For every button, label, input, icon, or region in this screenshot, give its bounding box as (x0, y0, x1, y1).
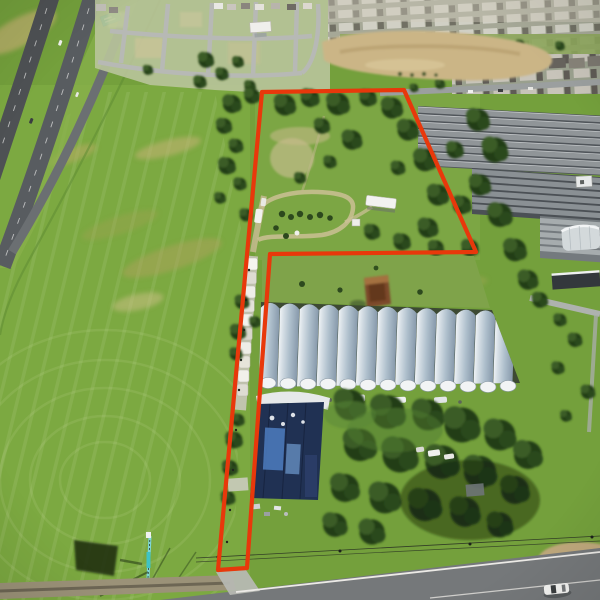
aerial-photo-frame: Aerial drone photo of a flag-shaped land… (0, 0, 600, 600)
vignette (0, 0, 600, 600)
aerial-photo (0, 0, 600, 600)
